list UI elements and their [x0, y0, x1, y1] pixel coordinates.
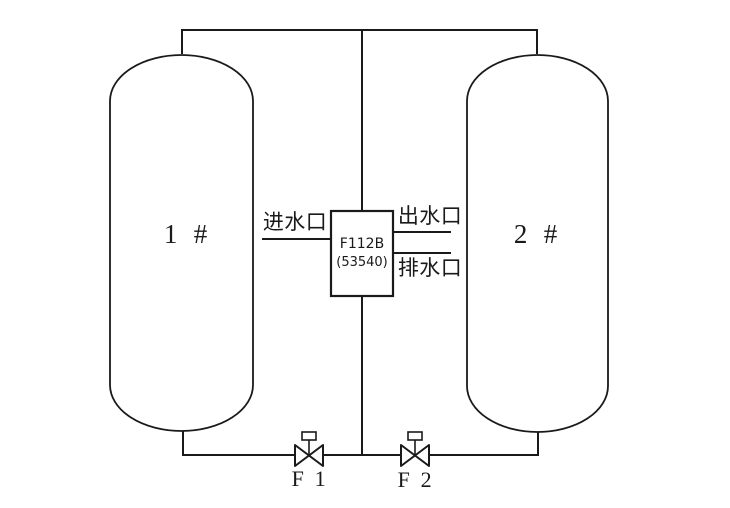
valve-f1-actuator — [302, 432, 316, 440]
controller-box — [331, 211, 393, 296]
piping-diagram — [0, 0, 730, 508]
valve-f2-left-triangle — [401, 445, 415, 466]
diagram-canvas: 1 # 2 # 进水口 出水口 排水口 F112B (53540) F 1 F … — [0, 0, 730, 508]
tank-1-label: 1 # — [164, 221, 212, 248]
outlet-port-label: 出水口 — [398, 206, 462, 227]
tank-2-label: 2 # — [514, 221, 562, 248]
valve-f2-actuator — [408, 432, 422, 440]
valve-f1 — [295, 432, 323, 466]
bottom-pipe — [183, 430, 538, 455]
valve-f1-right-triangle — [309, 445, 323, 466]
valve-f2 — [401, 432, 429, 466]
valve-f1-label: F 1 — [292, 468, 329, 490]
valve-f1-left-triangle — [295, 445, 309, 466]
controller-code-label: (53540) — [336, 256, 388, 269]
valve-f2-right-triangle — [415, 445, 429, 466]
controller-model-label: F112B — [340, 237, 384, 251]
inlet-port-label: 进水口 — [263, 212, 327, 233]
valve-f2-label: F 2 — [398, 469, 435, 491]
drain-port-label: 排水口 — [398, 258, 462, 279]
top-pipe — [182, 30, 537, 54]
